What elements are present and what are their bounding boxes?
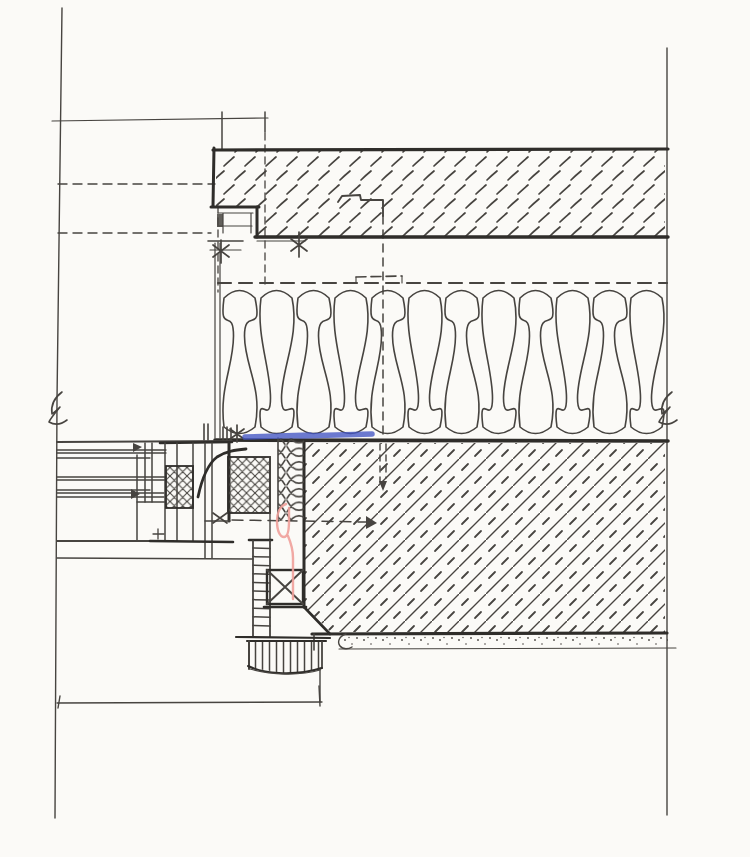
frame-bottom-line-heavy xyxy=(150,541,233,542)
insulation-strands xyxy=(223,291,664,434)
render-band-bottom-line xyxy=(339,648,676,649)
glazing-unit xyxy=(57,450,166,497)
blue-highlight-line xyxy=(245,434,372,437)
render-stipple-band xyxy=(341,636,668,648)
insulation-strand xyxy=(408,291,442,434)
ladder-rung xyxy=(253,625,270,626)
break-mark-left xyxy=(49,392,67,424)
wall-bottom-edge xyxy=(312,633,667,634)
head-recess-frame xyxy=(218,213,253,233)
insulation-strand xyxy=(260,291,294,434)
break-lines xyxy=(49,8,677,818)
insulation-strand xyxy=(297,291,331,434)
insulation-strand xyxy=(445,291,479,434)
sill-hatch-area xyxy=(250,642,322,674)
dimension-line-bottom xyxy=(57,702,322,703)
window-frame xyxy=(57,424,270,559)
ladder-rung xyxy=(253,557,270,558)
batt-insulation xyxy=(215,243,668,441)
slab-top-edge xyxy=(213,149,668,150)
insulation-strand xyxy=(556,291,590,434)
insulation-strand xyxy=(519,291,553,434)
insulation-strand xyxy=(223,291,257,434)
ladder-bottom-line xyxy=(236,637,330,638)
masonry-wall xyxy=(304,441,676,650)
timber-block-a xyxy=(166,466,193,508)
sill-board xyxy=(247,641,326,674)
ladder-rung xyxy=(253,617,270,618)
head-recess-block xyxy=(217,214,223,227)
wall-hatch-area xyxy=(305,443,665,632)
dimension-line-top xyxy=(52,118,268,121)
insulation-strand xyxy=(334,291,368,434)
slab-hatch-area xyxy=(216,150,665,236)
small-cross-mark xyxy=(153,529,164,539)
frame-top-line-heavy xyxy=(160,442,232,443)
frame-head-comb xyxy=(204,424,231,440)
insulation-strand xyxy=(371,291,405,434)
scanned-detail-drawing xyxy=(0,0,750,857)
floor-slab xyxy=(208,148,668,250)
ladder-rung xyxy=(253,565,270,566)
slab-left-edge xyxy=(213,148,214,206)
ladder-rung xyxy=(253,548,270,549)
x-box-diagonals xyxy=(267,570,303,604)
dashed-cap xyxy=(356,276,402,277)
dimension-ticks-bottom xyxy=(58,686,320,708)
drawing-canvas xyxy=(0,0,750,857)
frame-sill-line xyxy=(57,558,253,559)
timber-block-b xyxy=(228,457,270,513)
insulation-strand xyxy=(593,291,627,434)
insulation-strand xyxy=(630,291,664,434)
wool-strip-hatch xyxy=(278,438,304,521)
insulation-strand xyxy=(482,291,516,434)
